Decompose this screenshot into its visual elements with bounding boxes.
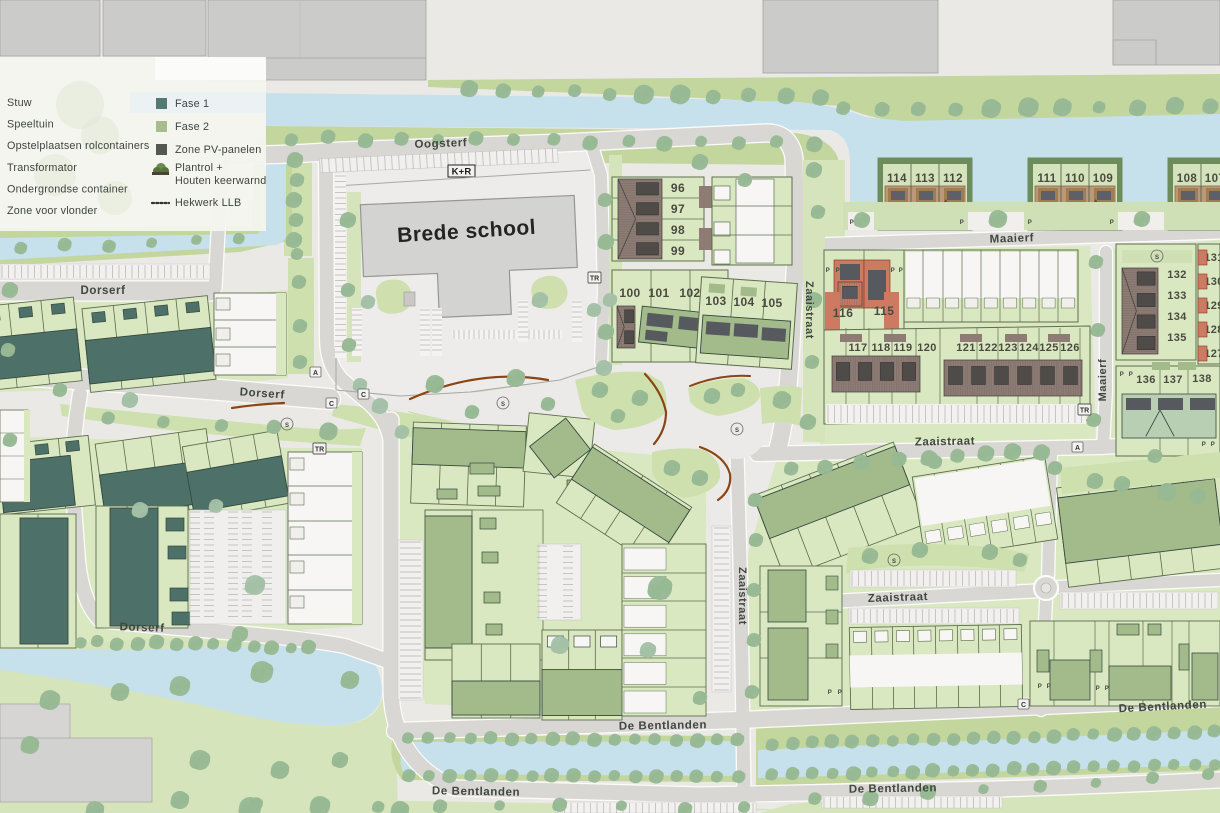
svg-text:Plantrol +: Plantrol + [175, 162, 223, 174]
svg-text:132: 132 [1167, 269, 1187, 281]
svg-text:105: 105 [761, 296, 782, 310]
svg-text:115: 115 [874, 304, 895, 318]
svg-text:S: S [285, 423, 289, 429]
svg-text:De Bentlanden: De Bentlanden [432, 785, 521, 799]
svg-text:Fase 2: Fase 2 [175, 121, 209, 133]
svg-text:P: P [960, 220, 964, 226]
svg-text:P: P [836, 268, 840, 274]
svg-text:C: C [1021, 702, 1026, 709]
svg-text:P: P [826, 268, 830, 274]
svg-text:De Bentlanden: De Bentlanden [849, 782, 938, 796]
svg-text:Hekwerk LLB: Hekwerk LLB [175, 197, 241, 209]
svg-text:102: 102 [679, 286, 700, 300]
svg-text:Zone PV-panelen: Zone PV-panelen [175, 144, 261, 156]
svg-text:Oogsterf: Oogsterf [414, 137, 467, 151]
svg-text:C: C [329, 401, 334, 408]
svg-text:112: 112 [943, 173, 963, 185]
svg-text:C: C [361, 392, 366, 399]
svg-text:118: 118 [872, 342, 891, 354]
svg-text:124: 124 [1019, 342, 1039, 354]
svg-text:Zaaistraat: Zaaistraat [803, 281, 815, 339]
svg-text:117: 117 [849, 342, 868, 354]
svg-text:S: S [735, 428, 739, 434]
svg-text:P: P [1028, 220, 1032, 226]
svg-text:119: 119 [894, 342, 913, 354]
svg-text:P: P [899, 268, 903, 274]
svg-text:120: 120 [917, 342, 937, 354]
svg-text:121: 121 [956, 342, 976, 354]
svg-text:113: 113 [915, 173, 935, 185]
svg-text:Opstelplaatsen rolcontainers: Opstelplaatsen rolcontainers [7, 140, 150, 152]
svg-text:P: P [828, 690, 832, 696]
svg-text:P: P [1038, 684, 1042, 690]
svg-text:114: 114 [887, 173, 907, 185]
svg-text:Zaaistraat: Zaaistraat [736, 567, 748, 625]
svg-text:110: 110 [1065, 173, 1085, 185]
svg-text:Speeltuin: Speeltuin [7, 119, 54, 131]
svg-text:97: 97 [671, 202, 685, 216]
svg-text:122: 122 [978, 342, 998, 354]
svg-text:Maaierf: Maaierf [1097, 359, 1109, 402]
svg-text:TR: TR [590, 276, 599, 283]
svg-text:99: 99 [671, 244, 685, 258]
svg-text:Dorserf: Dorserf [119, 621, 165, 635]
svg-text:126: 126 [1060, 342, 1080, 354]
svg-text:Zaaistraat: Zaaistraat [868, 591, 929, 605]
svg-text:Dorserf: Dorserf [80, 285, 125, 297]
svg-text:103: 103 [705, 294, 726, 308]
svg-text:134: 134 [1167, 311, 1187, 323]
svg-text:125: 125 [1039, 342, 1059, 354]
svg-text:Fase 1: Fase 1 [175, 98, 209, 110]
svg-text:Stuw: Stuw [7, 97, 32, 109]
svg-text:108: 108 [1177, 173, 1198, 185]
svg-text:S: S [892, 559, 896, 565]
svg-text:TR: TR [315, 447, 324, 454]
svg-text:S: S [1155, 255, 1159, 261]
svg-text:P: P [1096, 686, 1100, 692]
svg-text:P: P [1202, 442, 1206, 448]
svg-text:Zone voor vlonder: Zone voor vlonder [7, 205, 98, 217]
svg-text:101: 101 [648, 286, 669, 300]
svg-text:100: 100 [619, 286, 640, 300]
svg-text:Maaierf: Maaierf [989, 232, 1034, 246]
svg-text:P: P [1211, 442, 1215, 448]
svg-text:TR: TR [1080, 408, 1089, 415]
svg-text:P: P [838, 690, 842, 696]
svg-text:111: 111 [1037, 173, 1056, 185]
svg-text:135: 135 [1167, 332, 1187, 344]
svg-text:P: P [1120, 372, 1124, 378]
svg-text:P: P [850, 220, 854, 226]
svg-text:A: A [313, 370, 318, 377]
svg-text:De Bentlanden: De Bentlanden [619, 719, 708, 733]
svg-text:K+R: K+R [452, 167, 472, 178]
svg-text:123: 123 [998, 342, 1018, 354]
svg-text:137: 137 [1163, 374, 1183, 386]
svg-text:107: 107 [1205, 173, 1220, 185]
svg-text:Transformator: Transformator [7, 162, 77, 174]
svg-text:Zaaistraat: Zaaistraat [915, 435, 976, 448]
svg-text:136: 136 [1136, 374, 1156, 386]
svg-text:104: 104 [733, 295, 754, 309]
svg-text:Ondergrondse container: Ondergrondse container [7, 183, 128, 195]
svg-text:98: 98 [671, 223, 685, 237]
svg-text:A: A [1075, 445, 1080, 452]
svg-text:P: P [1110, 220, 1114, 226]
svg-text:116: 116 [833, 306, 854, 320]
svg-text:S: S [501, 402, 505, 408]
svg-text:133: 133 [1167, 290, 1187, 302]
svg-text:138: 138 [1192, 373, 1212, 385]
svg-text:P: P [1105, 686, 1109, 692]
svg-text:96: 96 [671, 181, 685, 195]
svg-text:P: P [1047, 684, 1051, 690]
svg-text:109: 109 [1093, 173, 1113, 185]
svg-text:Houten keerwarnd: Houten keerwarnd [175, 175, 266, 187]
svg-text:P: P [1129, 372, 1133, 378]
svg-text:P: P [891, 268, 895, 274]
